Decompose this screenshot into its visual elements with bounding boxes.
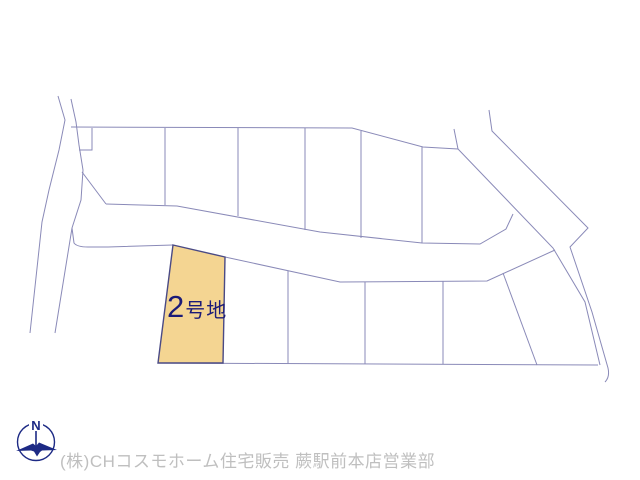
upper-block-left-diagonal — [82, 172, 106, 204]
middle-road-top-edge — [106, 204, 513, 244]
map-lines — [30, 96, 609, 382]
right-road-right-edge — [489, 110, 609, 382]
company-caption: (株)CHコスモホーム住宅販売 蕨駅前本店営業部 — [60, 447, 435, 472]
lower-block-bottom-boundary — [158, 363, 598, 365]
left-road-outer-line — [30, 96, 65, 333]
plot-2-label[interactable]: 2 号地 — [167, 291, 227, 322]
plot-map — [0, 0, 640, 480]
lower-divider-diagonal — [503, 273, 537, 365]
plot-2-number: 2 — [167, 291, 185, 322]
lower-block-top-boundary — [225, 250, 555, 282]
upper-block-notch — [79, 128, 92, 150]
plot-map-page: 2 号地 N (株)CHコスモホーム住宅販売 蕨駅前本店営業部 — [0, 0, 640, 480]
north-compass-icon: N — [14, 417, 60, 469]
left-road-branch — [72, 228, 173, 247]
left-road-inner-line — [55, 99, 83, 333]
compass-n-label: N — [31, 418, 40, 433]
upper-block-top-boundary — [71, 127, 458, 149]
right-road-left-edge — [454, 129, 600, 365]
plot-2-suffix: 号地 — [185, 301, 227, 321]
